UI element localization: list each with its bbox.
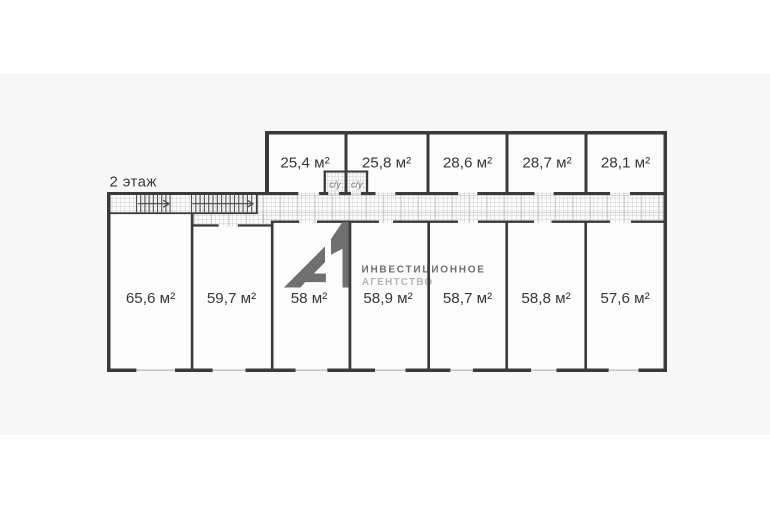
svg-text:28,1 м²: 28,1 м²: [601, 154, 650, 171]
svg-text:25,8 м²: 25,8 м²: [362, 154, 411, 171]
svg-text:58,8 м²: 58,8 м²: [521, 290, 570, 307]
svg-text:58,9 м²: 58,9 м²: [363, 290, 412, 307]
svg-text:ИНВЕСТИЦИОННОЕ: ИНВЕСТИЦИОННОЕ: [362, 265, 486, 276]
svg-text:65,6 м²: 65,6 м²: [126, 290, 175, 307]
svg-text:25,4 м²: 25,4 м²: [280, 154, 329, 171]
svg-text:58,7 м²: 58,7 м²: [443, 290, 492, 307]
svg-text:2 этаж: 2 этаж: [110, 174, 157, 191]
svg-text:59,7 м²: 59,7 м²: [207, 290, 256, 307]
svg-text:с/у: с/у: [329, 180, 341, 190]
svg-text:57,6 м²: 57,6 м²: [600, 290, 649, 307]
svg-text:АГЕНТСТВО: АГЕНТСТВО: [362, 277, 434, 288]
svg-text:28,7 м²: 28,7 м²: [522, 154, 571, 171]
svg-text:с/у: с/у: [351, 180, 363, 190]
svg-text:28,6 м²: 28,6 м²: [443, 154, 492, 171]
svg-text:58 м²: 58 м²: [291, 290, 328, 307]
